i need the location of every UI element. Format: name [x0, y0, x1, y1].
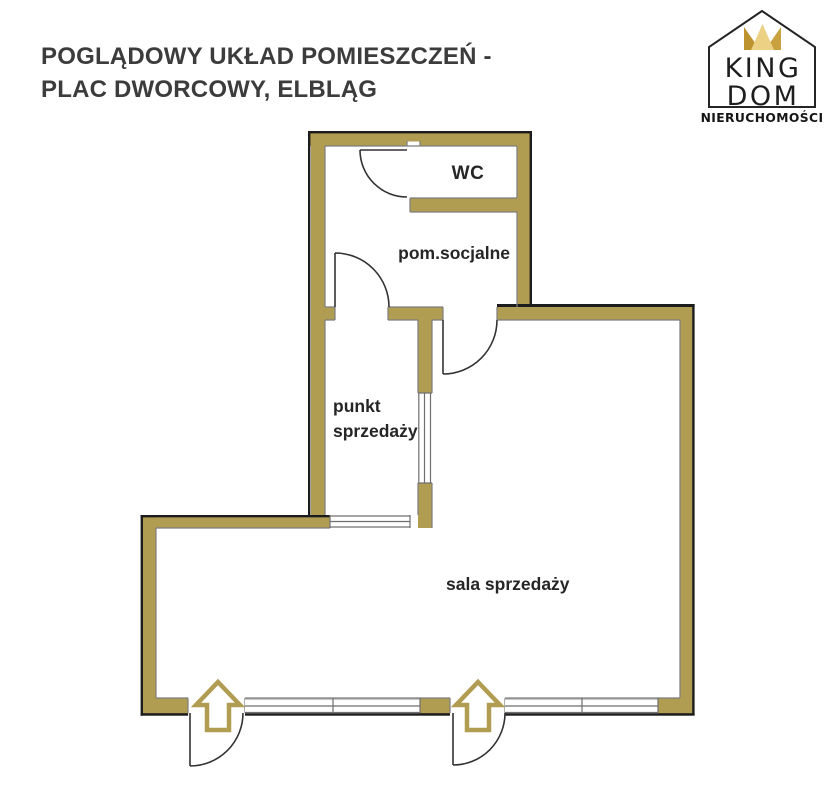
logo-subtitle-text: NIERUCHOMOŚCI [701, 110, 824, 125]
flyer-page: POGLĄDOWY UKŁAD POMIESZCZEŃ - PLAC DWORC… [0, 0, 826, 800]
wc-door [360, 150, 407, 197]
pom-sala-door [443, 320, 497, 374]
kingdom-logo: KING DOM NIERUCHOMOŚCI [699, 5, 825, 131]
logo-king-text: KING [725, 53, 802, 84]
room-label-pom-socjalne: pom.socjalne [386, 243, 510, 264]
room-label-wc: WC [445, 163, 491, 185]
entrance-arrow-right-icon [456, 682, 500, 730]
entrance-arrow-left-icon [196, 682, 240, 730]
room-label-sala-sprzedazy: sala sprzedaży [446, 574, 570, 595]
window-glass-lines [245, 393, 658, 713]
windows [245, 393, 658, 713]
room-label-punkt-sprzedazy: punkt sprzedaży [333, 394, 418, 444]
pom-punkt-door [335, 253, 389, 307]
logo-dom-text: DOM [727, 81, 800, 112]
